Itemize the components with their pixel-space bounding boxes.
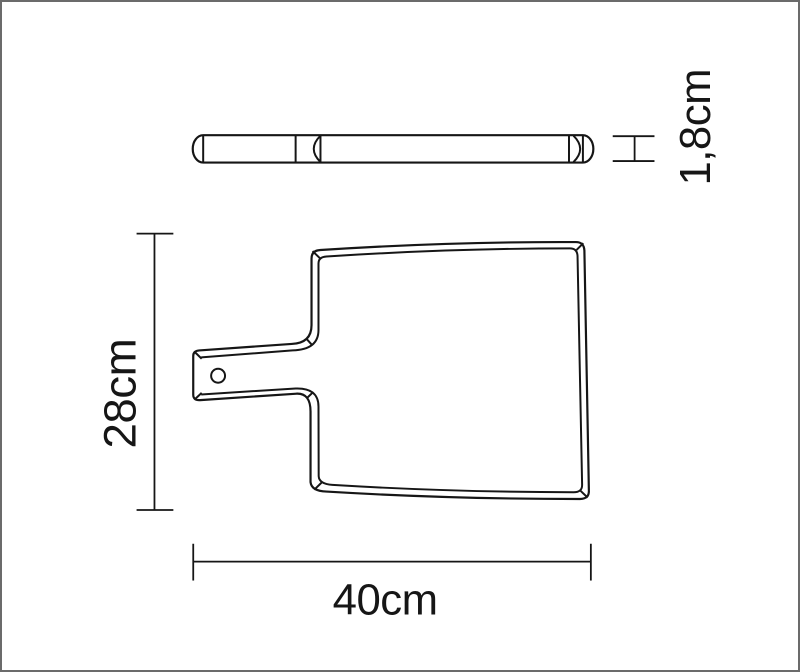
profile-outline (193, 135, 594, 162)
board-outline (193, 242, 589, 499)
width-dimension: 40cm (193, 544, 591, 625)
cutting-board-dimension-diagram: 1,8cm 28cm (2, 2, 798, 670)
corner-tick-handle-bottom-left (194, 393, 201, 400)
handle-hole (211, 369, 225, 383)
board-side-profile-view (193, 135, 594, 162)
profile-right-edge-curve (573, 136, 580, 162)
corner-tick-top-right (577, 243, 584, 250)
profile-handle-joint-curve (314, 136, 321, 162)
thickness-dimension-marker: 1,8cm (613, 69, 720, 186)
fillet-tick-handle-top (306, 338, 312, 345)
height-label: 28cm (95, 339, 146, 449)
corner-tick-bottom-left (314, 483, 321, 490)
board-inner-chamfer-line (201, 248, 582, 492)
height-dimension: 28cm (95, 234, 174, 510)
corner-tick-bottom-right (580, 491, 587, 498)
corner-tick-top-left (313, 251, 320, 258)
board-top-view (193, 242, 589, 499)
corner-tick-handle-top-left (194, 352, 201, 359)
diagram-frame: 1,8cm 28cm (0, 0, 800, 672)
width-label: 40cm (333, 575, 438, 624)
thickness-label: 1,8cm (671, 69, 720, 186)
fillet-tick-handle-bottom (306, 392, 313, 399)
